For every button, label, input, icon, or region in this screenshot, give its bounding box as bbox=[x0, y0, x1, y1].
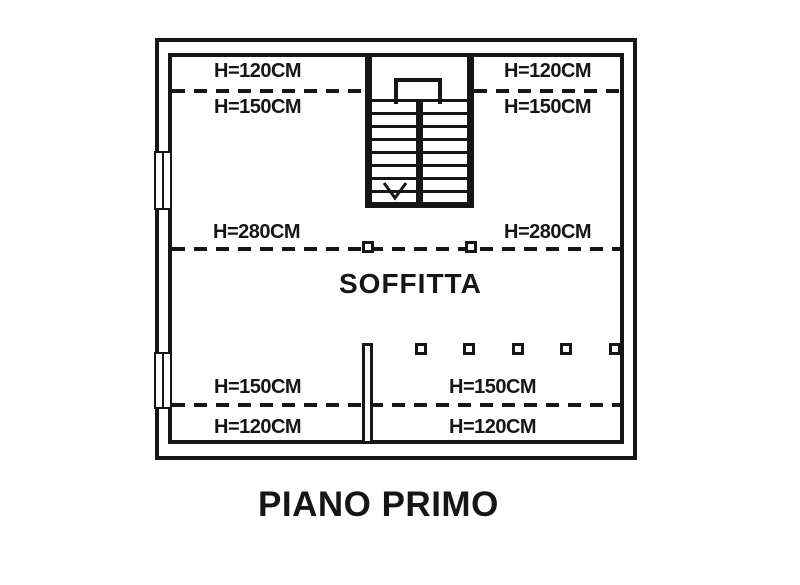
post-marker bbox=[465, 241, 477, 253]
interior-partition-wall bbox=[362, 343, 373, 444]
post-marker bbox=[512, 343, 524, 355]
height-limit-line-middle bbox=[172, 247, 620, 251]
post-marker bbox=[362, 241, 374, 253]
page-title: PIANO PRIMO bbox=[258, 487, 499, 522]
height-label-middle-left: H=280CM bbox=[213, 222, 300, 242]
height-limit-line-top-left bbox=[172, 89, 365, 93]
height-label-middle-right: H=280CM bbox=[504, 222, 591, 242]
window-pane-line bbox=[162, 354, 164, 407]
stair-central-stringer bbox=[416, 99, 423, 202]
height-limit-line-bottom bbox=[172, 403, 620, 407]
stair-wall-left bbox=[365, 55, 372, 208]
height-label-top-left-lower: H=150CM bbox=[214, 97, 301, 117]
height-label-bottom-left-upper: H=150CM bbox=[214, 377, 301, 397]
height-limit-line-top-right bbox=[474, 89, 620, 93]
height-label-top-left-upper: H=120CM bbox=[214, 61, 301, 81]
stair-wall-right bbox=[467, 55, 474, 208]
height-label-top-right-lower: H=150CM bbox=[504, 97, 591, 117]
window-icon bbox=[154, 151, 172, 210]
height-label-bottom-left-lower: H=120CM bbox=[214, 417, 301, 437]
height-label-bottom-right-upper: H=150CM bbox=[449, 377, 536, 397]
post-marker bbox=[560, 343, 572, 355]
room-label-soffitta: SOFFITTA bbox=[339, 270, 482, 298]
post-marker bbox=[609, 343, 621, 355]
stair-wall-bottom bbox=[365, 202, 474, 208]
post-marker bbox=[463, 343, 475, 355]
height-label-bottom-right-lower: H=120CM bbox=[449, 417, 536, 437]
floor-plan-page: H=120CM H=150CM H=120CM H=150CM H=280CM … bbox=[0, 0, 800, 585]
window-pane-line bbox=[162, 153, 164, 208]
stair-down-arrow-icon bbox=[381, 181, 409, 202]
height-label-top-right-upper: H=120CM bbox=[504, 61, 591, 81]
post-marker bbox=[415, 343, 427, 355]
window-icon bbox=[154, 352, 172, 409]
